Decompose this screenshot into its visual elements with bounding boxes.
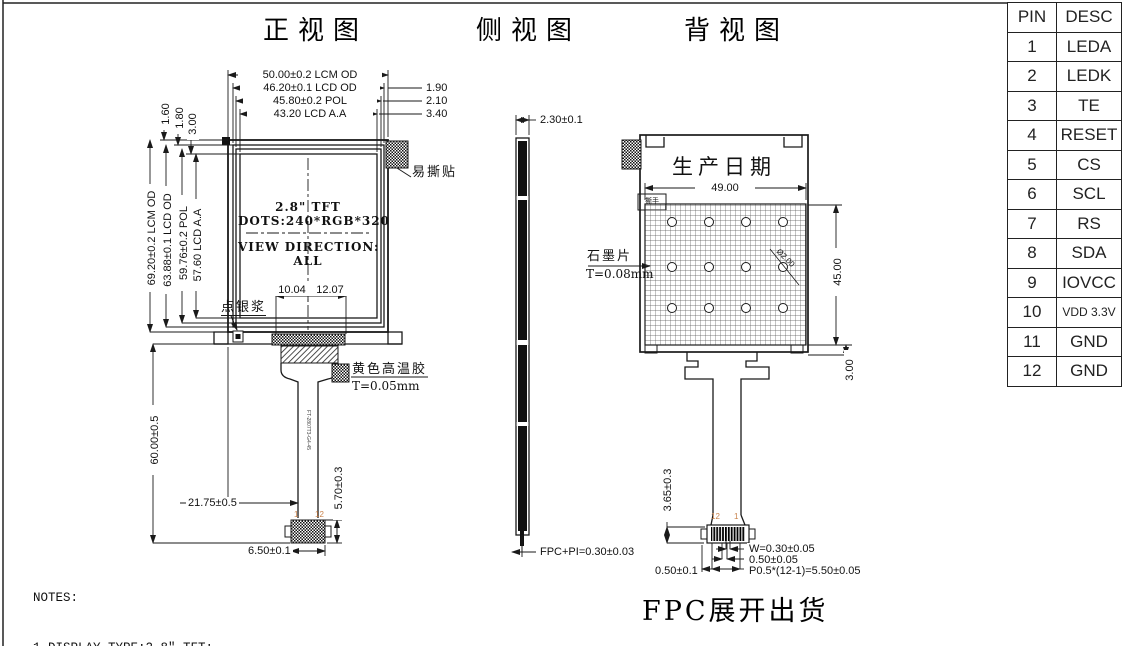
dim-right-3: 3.40 <box>424 108 449 120</box>
panel-size-text: 2.8" TFT <box>248 200 368 214</box>
dim-edge-margin: 0.50±0.1 <box>653 565 700 577</box>
pin-number: 2 <box>1008 62 1057 92</box>
dim-graphite-height: 45.00 <box>832 248 844 296</box>
back-pin12-number: 12 <box>711 512 720 521</box>
dim-lcm-od-width: 50.00±0.2 LCM OD <box>238 69 382 81</box>
pin-row: 10VDD 3.3V <box>1008 298 1122 328</box>
dim-lcd-od-height: 63.88±0.1 LCD OD <box>162 186 174 294</box>
front-pin1-number: 1 <box>294 510 298 519</box>
tear-sticker-pad <box>386 141 408 168</box>
pin-desc: TE <box>1057 91 1122 121</box>
pin-col-header: PIN <box>1008 3 1057 33</box>
panel-dots-text: DOTS:240*RGB*320 <box>238 214 378 228</box>
tape-pad <box>332 364 349 382</box>
side-view <box>516 138 529 552</box>
pin-number: 4 <box>1008 121 1057 151</box>
pin-desc: RESET <box>1057 121 1122 151</box>
gold-fingers <box>711 527 745 541</box>
note-line: 1.DISPLAY TYPE:2.8″,TFT; <box>33 640 333 646</box>
sheet-frame <box>3 0 1007 646</box>
dim-right-2: 2.10 <box>424 95 449 107</box>
dim-lcm-od-height: 69.20±0.2 LCM OD <box>146 184 158 292</box>
front-pin12-number: 12 <box>315 510 324 519</box>
pin-row: 1LEDA <box>1008 32 1122 62</box>
dim-stiffener-length: 5.70±0.3 <box>333 456 345 520</box>
back-pin1-number: 1 <box>734 512 738 521</box>
pin-row: 8SDA <box>1008 239 1122 269</box>
engineering-drawing-sheet: 正视图 侧视图 背视图 50.00±0.2 LCM OD 46.20±0.1 L… <box>0 0 1140 646</box>
pin-number: 3 <box>1008 91 1057 121</box>
pin-desc: LEDK <box>1057 62 1122 92</box>
dim-pol-height: 59.76±0.2 POL <box>178 195 190 291</box>
pin-number: 5 <box>1008 150 1057 180</box>
panel-view-dir-text: VIEW DIRECTION: <box>238 240 378 254</box>
tear-tab-label: 撕手 <box>640 197 664 206</box>
tape-label-line1: 黄色高温胶 <box>352 363 427 377</box>
pin-table-header: PIN DESC <box>1008 3 1122 33</box>
pin-desc: VDD 3.3V <box>1057 298 1122 328</box>
fpc-ship-title: FPC展开出货 <box>642 596 829 628</box>
dim-aa-height: 57.60 LCD A.A <box>192 199 204 291</box>
side-dimensions <box>512 115 650 557</box>
pin-number: 7 <box>1008 209 1057 239</box>
dim-fpc-total-length: 60.00±0.5 <box>149 405 161 475</box>
pin-row: 11GND <box>1008 327 1122 357</box>
graphite-label-line1: 石墨片 <box>587 250 632 264</box>
dim-mid-left: 10.04 <box>272 284 312 296</box>
dim-mid-right: 12.07 <box>310 284 350 296</box>
dim-topleft-3: 3.00 <box>187 108 199 140</box>
pin-desc: RS <box>1057 209 1122 239</box>
dim-fpc-thickness: FPC+PI=0.30±0.03 <box>538 546 636 558</box>
front-view-details <box>222 137 428 543</box>
dim-bottom-strip: 3.00 <box>844 350 856 390</box>
panel-view-all-text: ALL <box>238 254 378 268</box>
notes-block: NOTES: 1.DISPLAY TYPE:2.8″,TFT; 2.VIEWIN… <box>33 557 333 646</box>
dim-graphite-width: 49.00 <box>695 182 755 194</box>
dim-lcd-od-width: 46.20±0.1 LCD OD <box>240 82 380 94</box>
back-tear-sticker-pad <box>622 140 641 169</box>
dim-finger-pitch: P0.5*(12-1)=5.50±0.05 <box>747 565 863 577</box>
tear-sticker-label: 易撕贴 <box>412 166 457 180</box>
dim-topleft-1: 1.60 <box>160 98 172 130</box>
dim-connector-width: 6.50±0.1 <box>246 545 293 557</box>
dim-aa-width: 43.20 LCD A.A <box>247 108 373 120</box>
dim-right-1: 1.90 <box>424 82 449 94</box>
pin-number: 10 <box>1008 298 1057 328</box>
desc-col-header: DESC <box>1057 3 1122 33</box>
graphite-label-line2: T=0.08mm <box>586 268 654 280</box>
dim-tail-length: 3.65±0.3 <box>662 458 674 522</box>
pin-desc: SDA <box>1057 239 1122 269</box>
front-view-title: 正视图 <box>263 16 368 46</box>
silver-paste-label: 点银浆 <box>221 301 266 316</box>
pin-row: 3TE <box>1008 91 1122 121</box>
pin-row: 5CS <box>1008 150 1122 180</box>
notes-heading: NOTES: <box>33 590 333 607</box>
dim-topleft-2: 1.80 <box>174 102 186 134</box>
dim-pol-width: 45.80±0.2 POL <box>243 95 377 107</box>
pin-desc: CS <box>1057 150 1122 180</box>
pin-row: 12GND <box>1008 357 1122 387</box>
pin-number: 12 <box>1008 357 1057 387</box>
production-date-label: 生产日期 <box>668 155 780 179</box>
pin-description-table: PIN DESC 1LEDA 2LEDK 3TE 4RESET 5CS 6SCL… <box>1007 2 1122 387</box>
pin-row: 9IOVCC <box>1008 268 1122 298</box>
pin-row: 6SCL <box>1008 180 1122 210</box>
pin-row: 7RS <box>1008 209 1122 239</box>
tape-label-line2: T=0.05mm <box>352 380 420 392</box>
pin-number: 8 <box>1008 239 1057 269</box>
side-view-title: 侧视图 <box>476 16 581 46</box>
pin-row: 4RESET <box>1008 121 1122 151</box>
pin-number: 6 <box>1008 180 1057 210</box>
pin-row: 2LEDK <box>1008 62 1122 92</box>
pin-desc: GND <box>1057 327 1122 357</box>
pin-desc: IOVCC <box>1057 268 1122 298</box>
dim-fpc-offset: 21.75±0.5 <box>186 497 239 509</box>
dim-module-thickness: 2.30±0.1 <box>538 114 585 126</box>
pin-number: 9 <box>1008 268 1057 298</box>
pin-number: 1 <box>1008 32 1057 62</box>
pin-desc: GND <box>1057 357 1122 387</box>
fpc-part-marking: FT-2807T3-G4-45 <box>302 397 314 463</box>
pin-desc: SCL <box>1057 180 1122 210</box>
pin-number: 11 <box>1008 327 1057 357</box>
back-view-title: 背视图 <box>684 16 789 46</box>
pin-desc: LEDA <box>1057 32 1122 62</box>
